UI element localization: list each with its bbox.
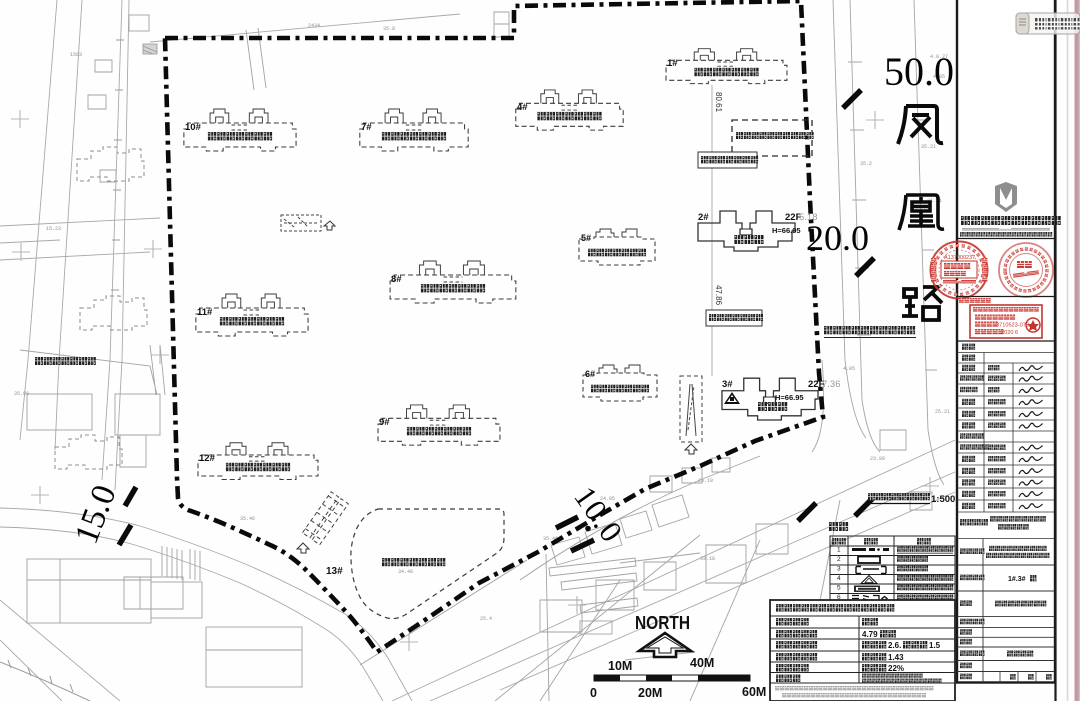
svg-text:35.8: 35.8 [383, 26, 395, 32]
svg-text:80.61: 80.61 [714, 92, 723, 113]
svg-text:20.0: 20.0 [806, 218, 869, 258]
svg-text:1#: 1# [667, 58, 678, 69]
svg-text:25.21: 25.21 [935, 409, 950, 415]
svg-text:0: 0 [590, 686, 597, 700]
svg-text:7#: 7# [361, 122, 372, 133]
svg-text:2.6.: 2.6. [888, 641, 901, 650]
svg-text:1.43: 1.43 [888, 653, 904, 662]
svg-text:34.48: 34.48 [398, 569, 413, 575]
svg-text:25.4: 25.4 [480, 616, 492, 622]
svg-text:35.2: 35.2 [860, 161, 872, 167]
svg-text:5: 5 [837, 585, 841, 592]
svg-text:35.21: 35.21 [921, 144, 936, 150]
svg-text:3710523-072: 3710523-072 [996, 323, 1029, 329]
svg-text:35.46: 35.46 [240, 516, 255, 522]
svg-text:50.0: 50.0 [884, 49, 954, 94]
svg-text:4: 4 [837, 575, 841, 582]
svg-text:10M: 10M [608, 659, 632, 673]
svg-text:22%: 22% [888, 664, 904, 673]
svg-text:2: 2 [837, 556, 841, 563]
svg-text:H=66.95: H=66.95 [772, 226, 801, 235]
svg-text:33.18: 33.18 [700, 556, 715, 562]
svg-text:4.79: 4.79 [862, 630, 878, 639]
svg-text:6#: 6# [585, 369, 595, 379]
svg-text:47.86: 47.86 [714, 285, 723, 306]
svg-text:3#: 3# [722, 379, 733, 390]
svg-text:35.08: 35.08 [14, 391, 29, 397]
svg-text:12#: 12# [199, 453, 216, 464]
svg-text:H=66.95: H=66.95 [775, 393, 804, 402]
svg-text:4.05: 4.05 [843, 366, 855, 372]
svg-text:A137000237: A137000237 [944, 255, 975, 261]
svg-text:1.5: 1.5 [929, 641, 941, 650]
svg-text:5#: 5# [581, 233, 591, 243]
svg-text:7.36: 7.36 [822, 379, 841, 390]
svg-text:8#: 8# [391, 274, 402, 285]
svg-text:1#.3#: 1#.3# [1008, 576, 1026, 583]
svg-text:9#: 9# [379, 417, 390, 428]
svg-text:10#: 10# [185, 122, 202, 133]
svg-text:13#: 13# [326, 566, 343, 577]
svg-text:3: 3 [837, 566, 841, 573]
svg-text:NORTH: NORTH [635, 613, 690, 633]
svg-text:23.89: 23.89 [870, 456, 885, 462]
svg-text:1:500: 1:500 [931, 494, 955, 505]
svg-text:20M: 20M [638, 686, 662, 700]
svg-text:2434: 2434 [308, 23, 320, 29]
svg-text:2#: 2# [698, 212, 709, 223]
svg-text:1: 1 [837, 547, 841, 554]
svg-text:40M: 40M [690, 656, 714, 670]
svg-text:4#: 4# [517, 102, 528, 113]
svg-text:60M: 60M [742, 685, 766, 699]
svg-text:1583: 1583 [70, 52, 82, 58]
svg-text:15.23: 15.23 [46, 226, 61, 232]
svg-text:2020 6: 2020 6 [1001, 330, 1018, 336]
svg-text:11#: 11# [197, 307, 213, 318]
